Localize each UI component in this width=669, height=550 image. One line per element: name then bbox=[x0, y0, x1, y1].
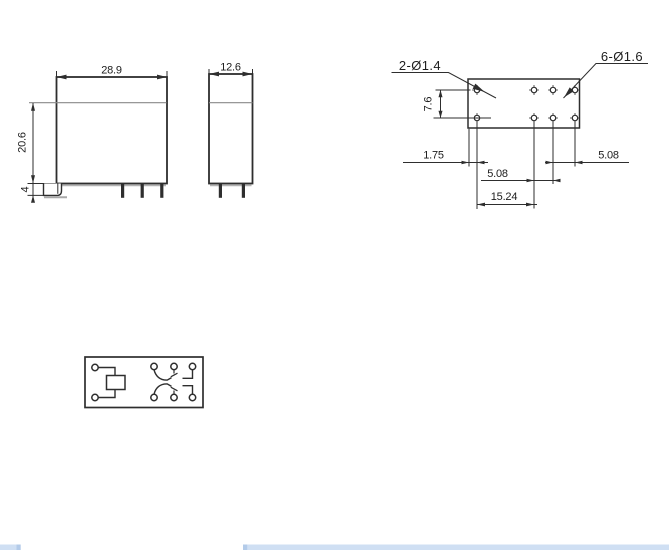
relay-pin bbox=[121, 184, 124, 198]
dimension-pitch-mid: 5.08 bbox=[481, 168, 561, 182]
dim-label-height: 20.6 bbox=[16, 132, 28, 153]
relay-body-outline bbox=[57, 77, 168, 184]
dimension-span: 15.24 bbox=[477, 191, 537, 206]
footprint-outline bbox=[468, 79, 580, 128]
callout-label-coil-holes: 2-Ø1.4 bbox=[399, 58, 441, 73]
mounting-hole bbox=[550, 115, 555, 120]
mounting-hole bbox=[550, 87, 555, 92]
relay-body-outline bbox=[209, 74, 253, 184]
mounting-hole bbox=[531, 115, 536, 120]
drawing-svg: 28.9 20.6 4 12.6 bbox=[0, 0, 669, 550]
mounting-hole bbox=[531, 87, 536, 92]
dim-label-pitch-mid: 5.08 bbox=[487, 168, 508, 180]
relay-pin bbox=[160, 184, 163, 198]
bottom-bar-left-edge bbox=[17, 545, 21, 550]
dim-label-depth: 12.6 bbox=[220, 62, 241, 74]
relay-datasheet-drawing: 28.9 20.6 4 12.6 bbox=[0, 0, 669, 550]
dim-label-standoff: 4 bbox=[19, 186, 31, 192]
dim-label-span: 15.24 bbox=[491, 191, 518, 203]
dimension-edge-offset: 1.75 bbox=[403, 150, 488, 165]
wiring-diagram bbox=[85, 357, 203, 408]
dimension-pitch-right: 5.08 bbox=[545, 150, 629, 165]
pcb-hole-layout: 2-Ø1.4 6-Ø1.6 7.6 1.75 bbox=[392, 49, 649, 209]
relay-pin bbox=[141, 184, 144, 198]
dim-label-width: 28.9 bbox=[101, 65, 122, 77]
side-view: 28.9 20.6 4 bbox=[16, 65, 167, 203]
bottom-bar-right-edge bbox=[243, 545, 247, 550]
schematic-border bbox=[85, 357, 203, 408]
extension-lines bbox=[469, 122, 575, 210]
bottom-bar-left bbox=[0, 545, 17, 550]
bottom-bar-right bbox=[243, 545, 669, 550]
relay-pin bbox=[219, 184, 222, 198]
callout-label-contact-holes: 6-Ø1.6 bbox=[601, 49, 643, 64]
dim-label-edge-offset: 1.75 bbox=[423, 150, 444, 162]
relay-pin bbox=[242, 184, 245, 198]
dim-label-row-pitch: 7.6 bbox=[422, 97, 434, 112]
mounting-hole bbox=[572, 115, 577, 120]
page-bottom-bars bbox=[0, 545, 669, 550]
dim-label-pitch-right: 5.08 bbox=[598, 150, 619, 162]
end-view: 12.6 bbox=[209, 62, 253, 198]
